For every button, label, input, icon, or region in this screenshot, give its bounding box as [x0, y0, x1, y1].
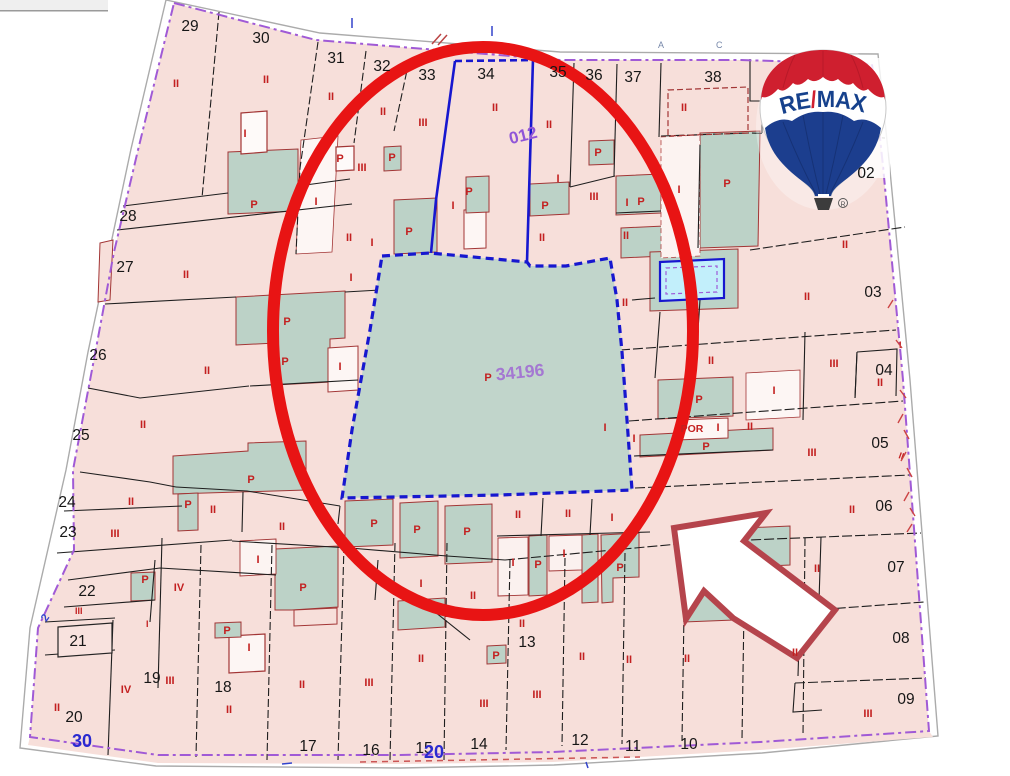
svg-text:II: II [128, 496, 134, 508]
svg-text:I: I [603, 422, 606, 434]
svg-text:III: III [479, 698, 488, 710]
svg-text:I: I [677, 184, 680, 196]
svg-text:II: II [849, 504, 855, 516]
svg-text:II: II [622, 297, 628, 309]
svg-text:P: P [594, 147, 601, 159]
svg-text:II: II [54, 702, 60, 714]
svg-text:P: P [250, 199, 257, 211]
svg-text:II: II [204, 365, 210, 377]
svg-text:II: II [804, 291, 810, 303]
svg-text:III: III [357, 162, 366, 174]
svg-text:II: II [299, 679, 305, 691]
svg-text:II: II [747, 421, 753, 433]
svg-text:25: 25 [72, 427, 89, 444]
svg-text:II: II [183, 269, 189, 281]
svg-text:II: II [380, 106, 386, 118]
svg-text:II: II [515, 509, 521, 521]
svg-text:10: 10 [680, 736, 698, 753]
svg-text:II: II [708, 355, 714, 367]
svg-text:II: II [623, 230, 629, 242]
svg-text:II: II [418, 653, 424, 665]
svg-text:A: A [658, 40, 664, 50]
svg-text:P: P [283, 316, 290, 328]
svg-text:24: 24 [58, 494, 76, 511]
svg-text:P: P [413, 524, 420, 536]
svg-text:12: 12 [571, 732, 588, 749]
svg-text:P: P [492, 650, 499, 662]
svg-text:II: II [263, 74, 269, 86]
svg-text:III: III [75, 606, 83, 616]
svg-text:II: II [539, 232, 545, 244]
svg-text:II: II [684, 653, 690, 665]
svg-text:III: III [807, 447, 816, 459]
svg-text:36: 36 [585, 67, 602, 84]
svg-text:II: II [470, 590, 476, 602]
svg-text:III: III [364, 677, 373, 689]
svg-text:20: 20 [65, 709, 83, 726]
svg-text:II: II [173, 78, 179, 90]
svg-text:37: 37 [624, 69, 641, 86]
svg-text:20: 20 [424, 742, 444, 762]
svg-text:II: II [210, 504, 216, 516]
svg-text:P: P [281, 356, 288, 368]
svg-text:P: P [484, 372, 491, 384]
svg-text:I: I [632, 433, 635, 445]
svg-text:II: II [877, 377, 883, 389]
svg-text:P: P [695, 394, 702, 406]
svg-text:I: I [314, 196, 317, 208]
svg-text:07: 07 [887, 559, 904, 576]
svg-text:II: II [681, 102, 687, 114]
svg-text:III: III [863, 708, 872, 720]
svg-text:I: I [349, 272, 352, 284]
svg-text:38: 38 [704, 69, 721, 86]
svg-text:I: I [562, 548, 565, 560]
svg-text:06: 06 [875, 498, 892, 515]
svg-text:P: P [247, 474, 254, 486]
svg-text:23: 23 [59, 524, 76, 541]
svg-text:I: I [511, 557, 514, 569]
svg-text:II: II [279, 521, 285, 533]
svg-text:30: 30 [252, 30, 270, 47]
svg-text:34: 34 [477, 66, 495, 83]
svg-text:IV: IV [121, 684, 132, 696]
svg-text:P: P [184, 499, 191, 511]
svg-text:P: P [534, 559, 541, 571]
svg-text:P: P [465, 186, 472, 198]
svg-text:I: I [451, 200, 454, 212]
svg-text:III: III [532, 689, 541, 701]
svg-text:P: P [463, 526, 470, 538]
svg-text:I: I [625, 197, 628, 209]
svg-text:27: 27 [116, 259, 133, 276]
svg-text:08: 08 [892, 630, 909, 647]
svg-text:II: II [328, 91, 334, 103]
svg-text:II: II [626, 654, 632, 666]
svg-text:III: III [829, 358, 838, 370]
svg-text:POR: POR [681, 423, 704, 435]
svg-text:28: 28 [119, 208, 136, 225]
svg-text:II: II [226, 704, 232, 716]
svg-text:18: 18 [214, 679, 231, 696]
svg-text:I: I [247, 642, 250, 654]
svg-text:I: I [243, 128, 246, 140]
svg-text:11: 11 [625, 738, 641, 755]
svg-text:P: P [141, 574, 148, 586]
svg-text:P: P [723, 178, 730, 190]
svg-text:13: 13 [518, 634, 535, 651]
svg-text:17: 17 [299, 738, 316, 755]
svg-text:32: 32 [373, 58, 390, 75]
svg-text:III: III [418, 117, 427, 129]
svg-text:II: II [842, 239, 848, 251]
svg-text:03: 03 [864, 284, 881, 301]
svg-text:I: I [716, 422, 719, 434]
svg-text:P: P [370, 518, 377, 530]
svg-text:I: I [556, 173, 559, 185]
svg-text:P: P [388, 152, 395, 164]
svg-text:19: 19 [143, 670, 160, 687]
svg-text:I: I [772, 385, 775, 397]
svg-text:IV: IV [174, 582, 185, 594]
svg-text:16: 16 [362, 742, 379, 759]
svg-text:29: 29 [181, 18, 198, 35]
svg-text:C: C [716, 40, 723, 50]
svg-text:III: III [589, 191, 598, 203]
svg-text:P: P [223, 625, 230, 637]
svg-text:P: P [702, 441, 709, 453]
svg-text:02: 02 [857, 165, 874, 182]
svg-text:P: P [637, 196, 644, 208]
svg-text:I: I [256, 554, 259, 566]
svg-text:21: 21 [69, 633, 86, 650]
svg-text:II: II [346, 232, 352, 244]
svg-text:III: III [110, 528, 119, 540]
svg-text:P: P [405, 226, 412, 238]
svg-text:30: 30 [72, 731, 92, 751]
svg-text:09: 09 [897, 691, 914, 708]
svg-text:I: I [419, 578, 422, 590]
svg-text:II: II [814, 563, 820, 575]
svg-text:P: P [299, 582, 306, 594]
svg-text:II: II [519, 618, 525, 630]
svg-text:II: II [140, 419, 146, 431]
svg-text:P: P [336, 153, 343, 165]
svg-text:R: R [840, 202, 845, 209]
svg-text:III: III [165, 675, 174, 687]
svg-text:05: 05 [871, 435, 888, 452]
svg-text:II: II [565, 508, 571, 520]
svg-text:P: P [616, 562, 623, 574]
svg-text:II: II [492, 102, 498, 114]
svg-text:II: II [546, 119, 552, 131]
svg-text:31: 31 [327, 50, 344, 67]
svg-text:22: 22 [78, 583, 95, 600]
svg-text:P: P [541, 200, 548, 212]
svg-text:II: II [792, 647, 798, 659]
svg-text:33: 33 [418, 67, 435, 84]
svg-text:14: 14 [470, 736, 488, 753]
svg-text:I: I [146, 619, 149, 629]
svg-text:I: I [370, 237, 373, 249]
svg-text:I: I [610, 512, 613, 524]
svg-text:II: II [579, 651, 585, 663]
svg-text:35: 35 [549, 64, 566, 81]
svg-text:26: 26 [89, 347, 106, 364]
svg-text:I: I [338, 361, 341, 373]
